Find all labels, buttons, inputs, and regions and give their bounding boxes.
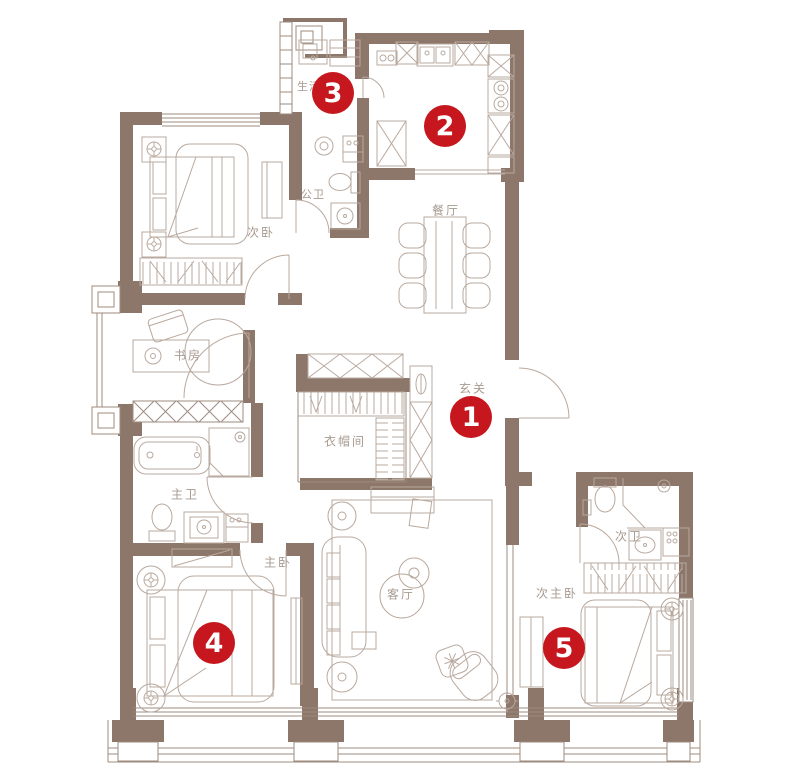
doors bbox=[184, 77, 619, 596]
cloakroom-furniture bbox=[298, 354, 406, 482]
hatched-wall bbox=[133, 401, 243, 422]
room-label-living-room: 客厅 bbox=[387, 586, 415, 603]
room-label-master-bedroom: 主卧 bbox=[264, 554, 292, 571]
room-label-second-master-bedroom: 次主卧 bbox=[536, 585, 578, 602]
guest-bathroom-fixtures bbox=[315, 136, 363, 229]
marker-4[interactable]: 4 bbox=[193, 622, 235, 664]
marker-3[interactable]: 3 bbox=[312, 72, 354, 114]
room-label-second-bathroom: 次卫 bbox=[615, 528, 643, 545]
marker-5[interactable]: 5 bbox=[543, 627, 585, 669]
marker-1[interactable]: 1 bbox=[450, 396, 492, 438]
room-label-master-bathroom: 主卫 bbox=[171, 486, 199, 503]
utility-balcony-fixtures bbox=[299, 40, 360, 66]
floor-plan: 次卧 公卫 餐厅 生活 书房 玄关 衣帽间 主卫 主卧 客厅 次卫 次主卧 1 … bbox=[0, 0, 800, 779]
floor-plan-graphic bbox=[0, 0, 800, 779]
foyer-cabinet bbox=[410, 366, 432, 478]
room-label-guest-bathroom: 公卫 bbox=[301, 186, 325, 202]
living-room-furniture bbox=[322, 487, 518, 712]
room-label-cloakroom: 衣帽间 bbox=[324, 433, 366, 450]
room-label-dining-room: 餐厅 bbox=[432, 202, 460, 219]
secondary-bedroom-furniture bbox=[140, 137, 282, 285]
room-label-foyer: 玄关 bbox=[459, 380, 487, 397]
room-label-secondary-bedroom: 次卧 bbox=[247, 224, 275, 241]
room-label-study: 书房 bbox=[174, 347, 202, 364]
dining-furniture bbox=[399, 217, 490, 313]
furniture bbox=[133, 40, 689, 712]
marker-2[interactable]: 2 bbox=[424, 105, 466, 147]
